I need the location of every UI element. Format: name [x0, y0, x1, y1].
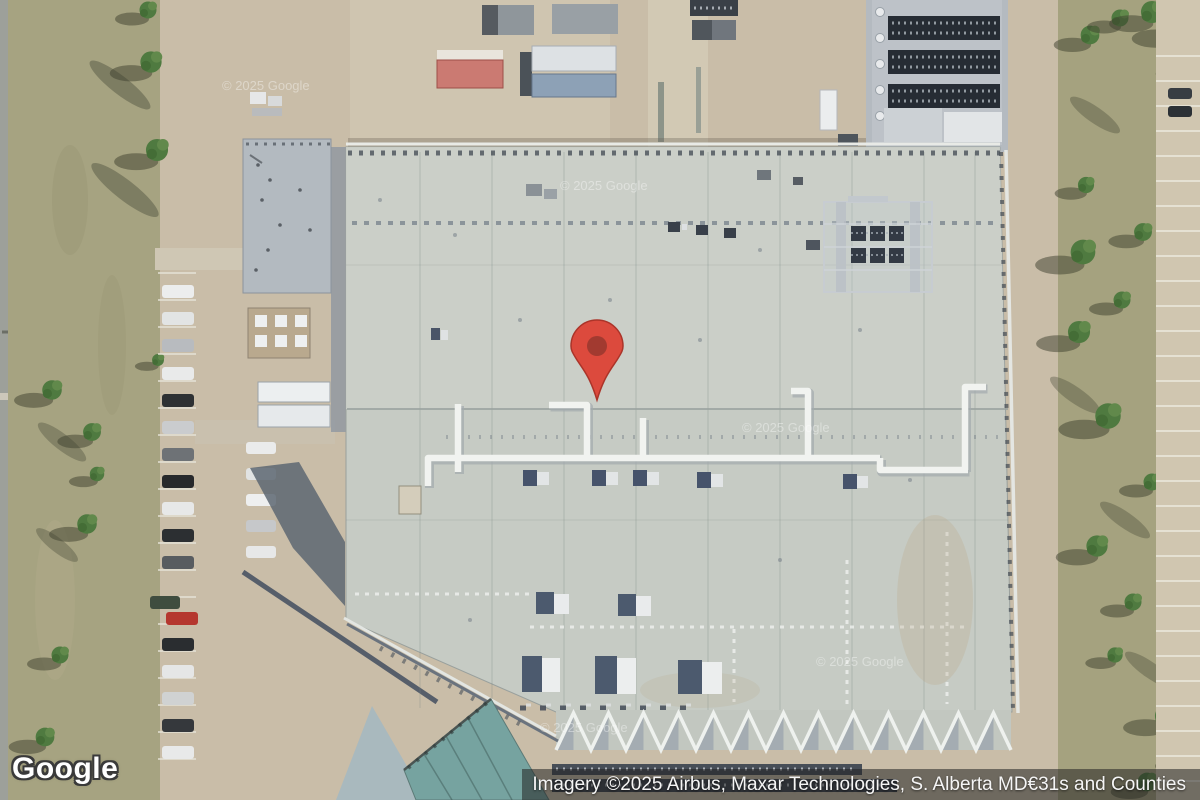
fan-bank [888, 84, 1000, 108]
left-greenbelt [8, 0, 169, 800]
white-trailer [532, 46, 616, 71]
dock-trailer [258, 382, 330, 402]
fan-bank [888, 50, 1000, 74]
right-parking-lot [1156, 0, 1200, 800]
map-viewport[interactable]: © 2025 Google © 2025 Google © 2025 Googl… [0, 0, 1200, 800]
attribution-bar: Imagery ©2025 Airbus, Maxar Technologies… [522, 769, 1200, 800]
google-logo[interactable]: Google [12, 752, 118, 786]
roof-lattice-tower [806, 196, 932, 292]
dock-trailer [258, 405, 330, 427]
red-roof-shed [437, 60, 503, 88]
sawtooth-roof-edge [556, 710, 1011, 750]
white-truck [820, 90, 837, 130]
satellite-map[interactable] [0, 0, 1200, 800]
fan-bank [888, 16, 1000, 40]
main-building-roof [344, 144, 1018, 750]
blue-trailer [532, 74, 616, 97]
attribution-text: Imagery ©2025 Airbus, Maxar Technologies… [532, 774, 1186, 796]
